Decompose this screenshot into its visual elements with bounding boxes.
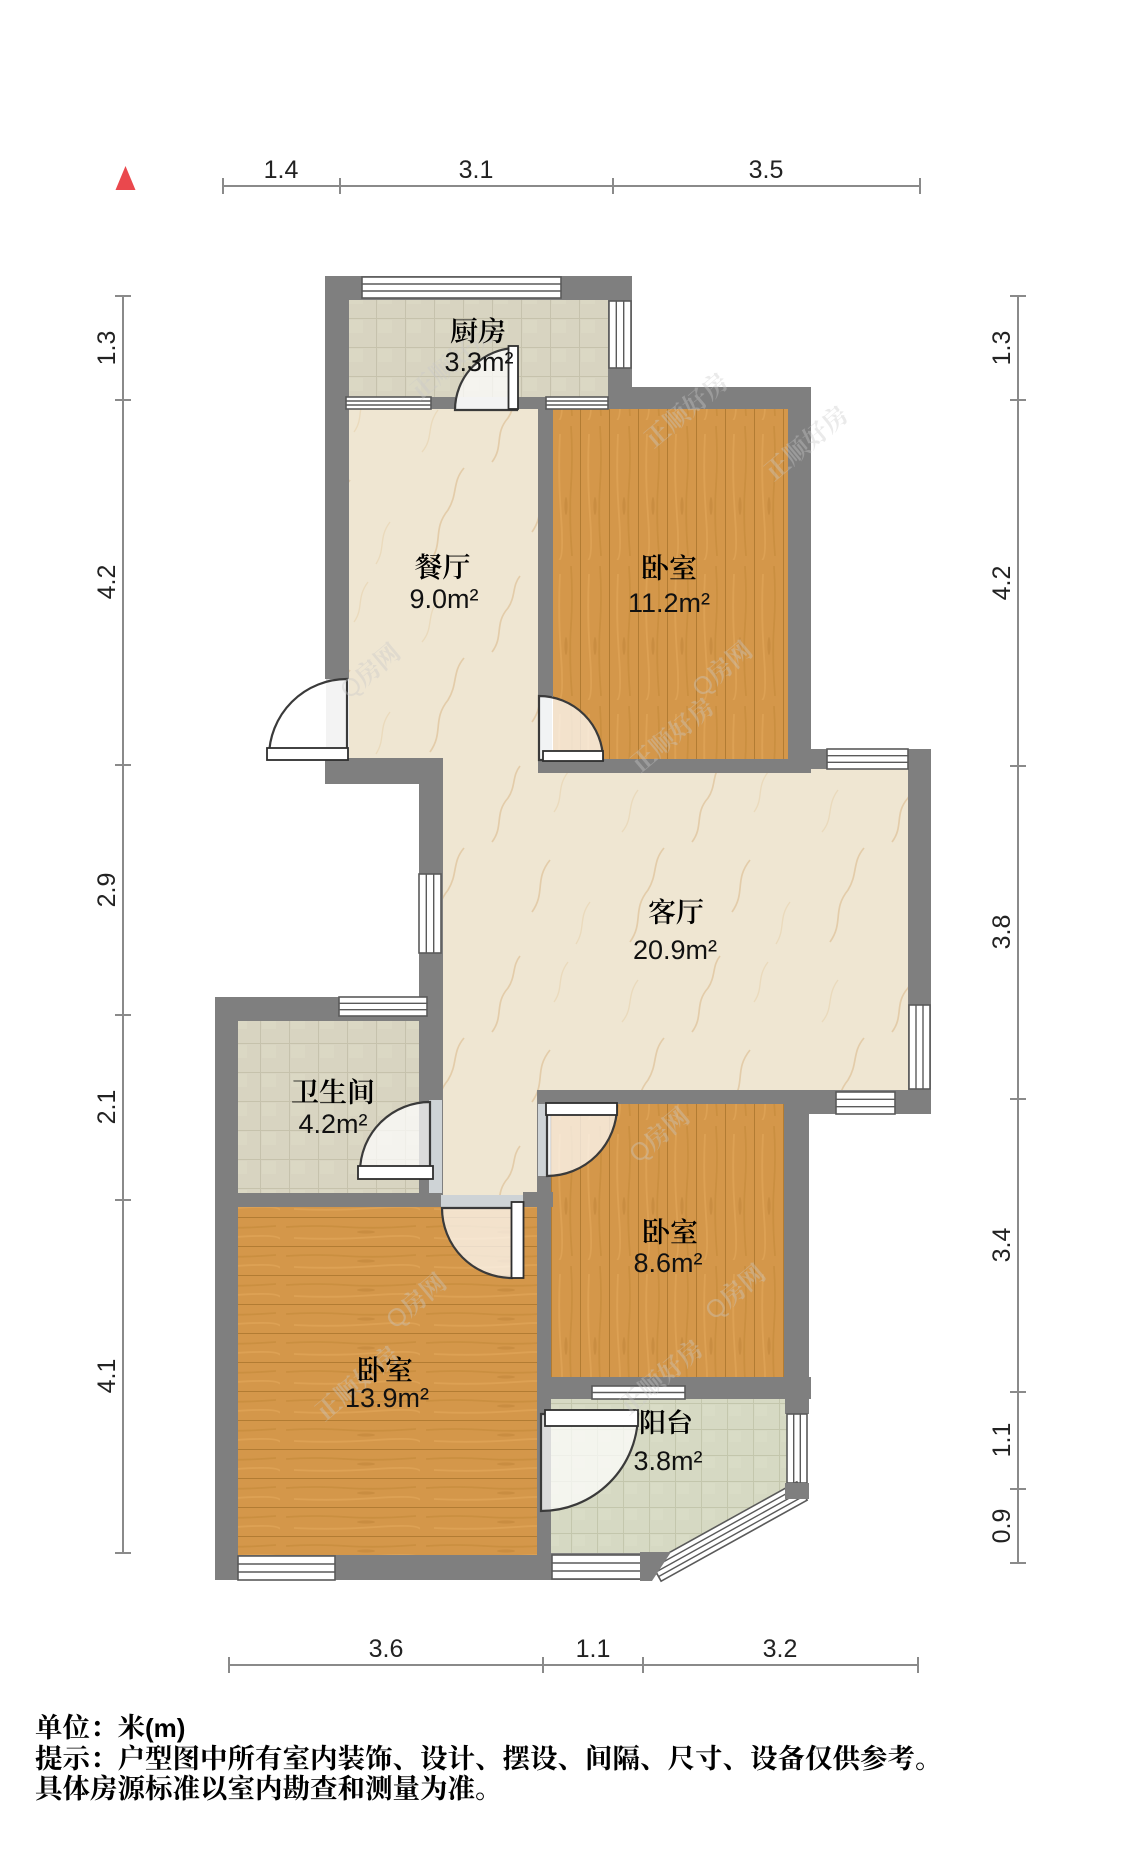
svg-text:8.6m²: 8.6m² [633,1248,702,1278]
svg-text:3.6: 3.6 [369,1635,404,1663]
svg-text:3.4: 3.4 [988,1228,1016,1263]
svg-text:1.3: 1.3 [988,331,1016,366]
svg-text:1.3: 1.3 [93,331,121,366]
svg-text:20.9m²: 20.9m² [633,935,717,965]
svg-text:3.5: 3.5 [749,156,784,184]
svg-text:3.8m²: 3.8m² [633,1446,702,1476]
svg-text:11.2m²: 11.2m² [628,588,710,618]
svg-text:13.9m²: 13.9m² [345,1383,429,1413]
svg-text:3.2: 3.2 [763,1635,798,1663]
svg-text:4.1: 4.1 [93,1359,121,1394]
svg-text:3.8: 3.8 [988,915,1016,950]
svg-text:3.3m²: 3.3m² [444,347,513,377]
svg-text:9.0m²: 9.0m² [409,584,478,614]
svg-text:(m): (m) [145,1713,185,1743]
svg-text:1.1: 1.1 [988,1423,1016,1458]
svg-text:1.1: 1.1 [576,1635,611,1663]
svg-text:2.1: 2.1 [93,1090,121,1125]
svg-text:4.2: 4.2 [93,565,121,600]
svg-text:4.2: 4.2 [988,566,1016,601]
svg-text:0.9: 0.9 [988,1509,1016,1544]
svg-text:3.1: 3.1 [459,156,494,184]
svg-text:1.4: 1.4 [264,156,299,184]
svg-text:4.2m²: 4.2m² [298,1109,367,1139]
svg-text:2.9: 2.9 [93,873,121,908]
